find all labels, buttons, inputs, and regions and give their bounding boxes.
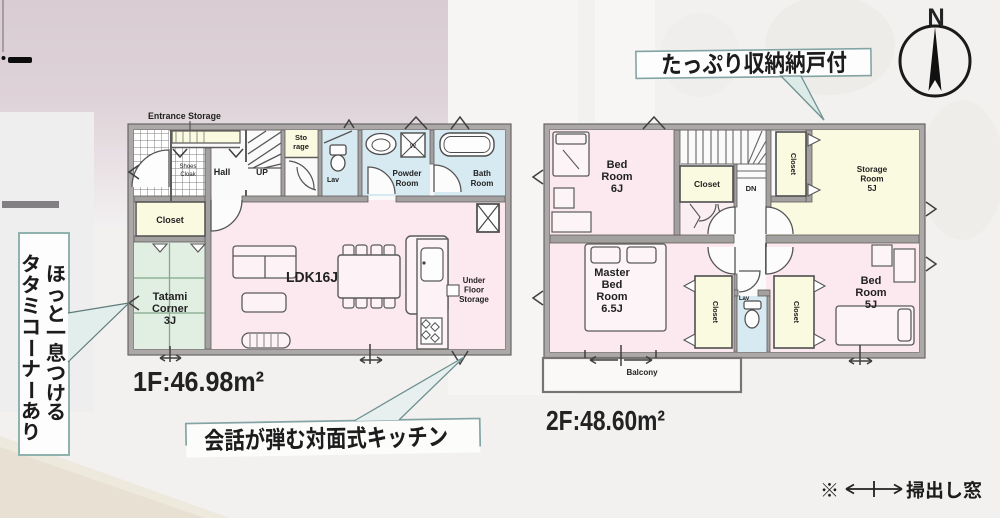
svg-text:6J: 6J [611,183,623,195]
svg-text:Storage: Storage [459,295,489,304]
svg-text:Hall: Hall [214,167,231,177]
svg-text:1F:46.98m²: 1F:46.98m² [133,366,264,397]
svg-text:Closet: Closet [156,215,184,225]
svg-text:5J: 5J [867,184,876,193]
svg-text:Lav: Lav [327,177,339,184]
svg-text:Closet: Closet [694,179,720,189]
svg-text:Floor: Floor [464,286,484,295]
svg-text:rage: rage [293,142,309,151]
svg-text:5J: 5J [865,299,877,311]
svg-text:UP: UP [256,167,268,177]
svg-text:W: W [410,143,417,150]
svg-text:Under: Under [463,276,486,285]
svg-text:Closet: Closet [792,301,801,324]
svg-text:N: N [927,4,944,31]
svg-text:Cloak: Cloak [180,172,196,178]
svg-text:Room: Room [860,175,883,184]
svg-text:Room: Room [471,179,494,188]
svg-text:Storage: Storage [857,165,888,174]
svg-text:Bed: Bed [607,159,628,171]
svg-text:Shoes: Shoes [179,164,196,170]
svg-text:Room: Room [396,179,419,188]
svg-text:LDK16J: LDK16J [286,269,338,286]
svg-text:Bed: Bed [861,275,882,287]
svg-text:Room: Room [601,171,632,183]
svg-text:6.5J: 6.5J [601,303,622,315]
svg-text:Entrance Storage: Entrance Storage [148,111,221,121]
svg-text:Room: Room [855,287,886,299]
svg-text:Tatami: Tatami [153,291,188,303]
svg-text:Room: Room [596,291,627,303]
svg-text:Closet: Closet [711,301,720,324]
svg-text:Balcony: Balcony [626,368,658,377]
svg-text:DN: DN [746,184,757,193]
svg-text:Powder: Powder [393,169,422,178]
svg-text:Bed: Bed [602,279,623,291]
svg-text:Sto: Sto [295,133,308,142]
svg-text:Lav: Lav [739,296,750,302]
svg-text:Corner: Corner [152,303,189,315]
svg-text:Bath: Bath [473,169,491,178]
svg-text:3J: 3J [164,315,176,327]
svg-text:Closet: Closet [789,153,798,176]
svg-text:Master: Master [594,267,630,279]
svg-text:2F:48.60m²: 2F:48.60m² [546,405,665,436]
